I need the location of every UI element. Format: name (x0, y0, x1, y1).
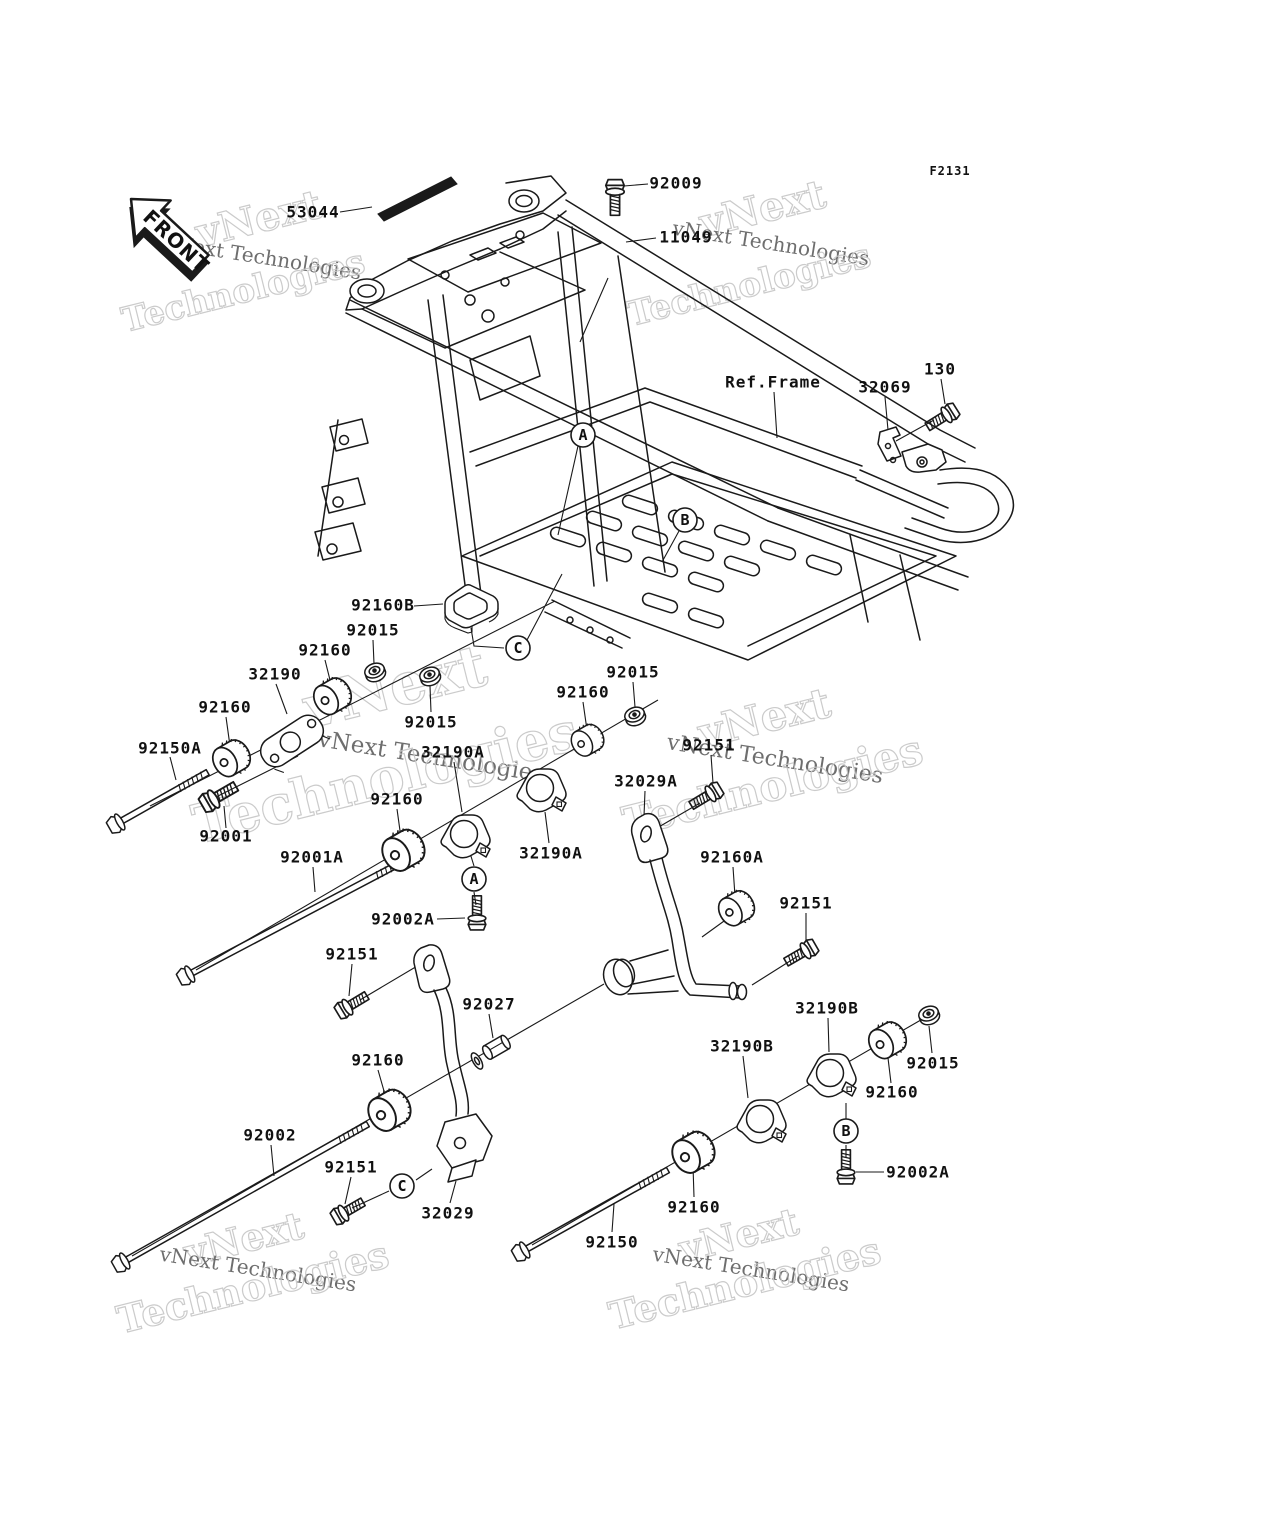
part-label-32069: 32069 (858, 378, 911, 397)
part-label-92151-3: 92151 (325, 945, 378, 964)
part-label-32190A-2: 32190A (519, 844, 583, 863)
callout-b-parts: B (834, 1119, 858, 1143)
part-92151-bolt-4 (329, 1194, 367, 1226)
part-92160-bushing-6 (361, 1082, 418, 1139)
part-label-92160B: 92160B (351, 596, 415, 615)
part-92027-spacer (481, 1034, 512, 1061)
part-label-92160-4: 92160 (556, 683, 609, 702)
part-label-92160-7: 92160 (667, 1198, 720, 1217)
callout-c-parts: C (390, 1174, 414, 1198)
part-label-92009: 92009 (649, 174, 702, 193)
part-label-92015-4: 92015 (906, 1054, 959, 1073)
watermark-mid-left: vNext vNext Technologies Technologies (186, 631, 585, 856)
part-label-92160-3: 92160 (370, 790, 423, 809)
frame-drawing (315, 176, 1013, 660)
part-92160-bushing-4 (375, 822, 432, 879)
part-label-92150A: 92150A (138, 739, 202, 758)
part-label-92015-3: 92015 (606, 663, 659, 682)
part-label-32190B-1: 32190B (710, 1037, 774, 1056)
part-92160A-bushing (713, 884, 761, 932)
watermark-bottom-left: vNext vNext Technologies Technologies (112, 1202, 393, 1342)
callout-letter: A (578, 426, 587, 444)
callout-letter: C (397, 1177, 406, 1195)
part-label-53044: 53044 (286, 203, 339, 222)
part-label-92160A: 92160A (700, 848, 764, 867)
callout-a-frame: A (571, 423, 595, 447)
part-label-92001A: 92001A (280, 848, 344, 867)
watermark-top-right: vNext vNext Technologies Technologies (624, 171, 875, 335)
part-32190A-clamp-1 (441, 815, 490, 858)
ref-frame-label: Ref.Frame (725, 373, 821, 392)
callout-letter: C (513, 639, 522, 657)
part-label-32190B-2: 32190B (795, 999, 859, 1018)
callout-letter: A (469, 870, 478, 888)
part-label-92015-1: 92015 (346, 621, 399, 640)
part-label-92151-4: 92151 (324, 1158, 377, 1177)
part-label-92160-1: 92160 (298, 641, 351, 660)
part-53044-strip (378, 177, 457, 221)
part-92151-bolt-3 (333, 988, 371, 1021)
part-92160-bushing-7 (665, 1124, 722, 1181)
part-32190B-clamp-1 (737, 1100, 786, 1143)
part-label-92015-2: 92015 (404, 713, 457, 732)
part-label-11049: 11049 (659, 228, 712, 247)
part-label-32029: 32029 (421, 1204, 474, 1223)
part-130-bolt (923, 401, 961, 434)
callout-b-frame: B (673, 508, 697, 532)
parts-diagram-page: vNext vNext Technologies Technologies vN… (0, 0, 1280, 1536)
part-92002A-bolt-1 (468, 896, 486, 930)
callout-letter: B (680, 511, 689, 529)
callout-a-parts: A (462, 867, 486, 891)
callout-letter: B (841, 1122, 850, 1140)
part-label-130: 130 (924, 360, 956, 379)
part-label-92002: 92002 (243, 1126, 296, 1145)
callout-c-frame: C (506, 636, 530, 660)
part-label-92160-6: 92160 (865, 1083, 918, 1102)
part-label-92027: 92027 (462, 995, 515, 1014)
part-label-92160-2: 92160 (198, 698, 251, 717)
watermark-bottom-right: vNext vNext Technologies Technologies (604, 1198, 885, 1338)
part-92160B-pad (445, 585, 498, 633)
part-label-32029A: 32029A (614, 772, 678, 791)
part-92151-bolt-2 (782, 937, 820, 969)
part-92009-bolt (606, 180, 624, 216)
diagram-canvas: vNext vNext Technologies Technologies vN… (0, 0, 1280, 1536)
part-32190B-clamp-2 (807, 1054, 856, 1097)
part-label-92001: 92001 (199, 827, 252, 846)
part-label-92002A-1: 92002A (371, 910, 435, 929)
part-label-92002A-2: 92002A (886, 1163, 950, 1182)
part-92160-bushing-1 (206, 733, 257, 783)
part-92015-nut-4 (917, 1004, 942, 1028)
part-label-32190: 32190 (248, 665, 301, 684)
figure-code: F2131 (929, 164, 970, 178)
part-label-32190A-1: 32190A (421, 743, 485, 762)
watermark-mid-right: vNext vNext Technologies Technologies (617, 678, 927, 847)
part-label-92151-1: 92151 (682, 736, 735, 755)
part-label-92151-2: 92151 (779, 894, 832, 913)
part-label-92160-5: 92160 (351, 1051, 404, 1070)
part-label-92150: 92150 (585, 1233, 638, 1252)
